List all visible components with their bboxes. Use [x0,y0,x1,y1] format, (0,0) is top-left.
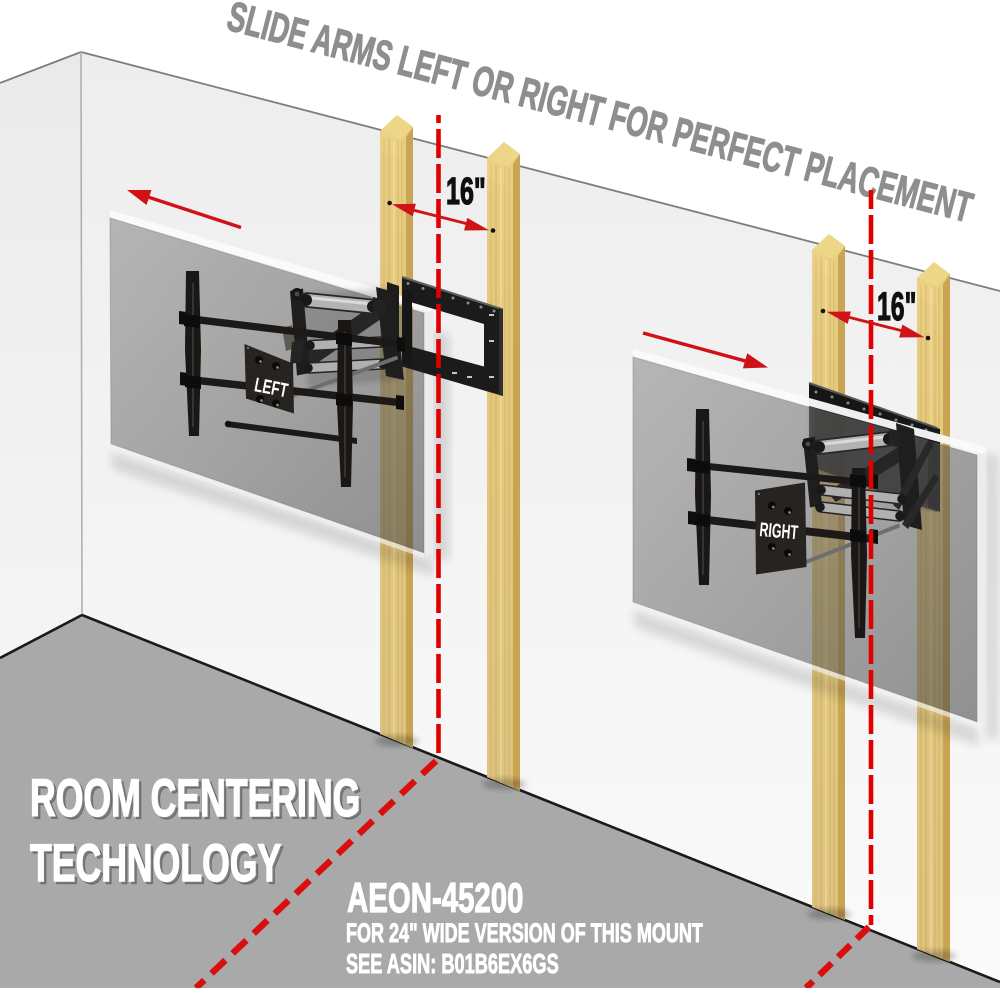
svg-text:RIGHT: RIGHT [759,518,799,544]
svg-text:16": 16" [446,170,486,212]
svg-text:FOR 24" WIDE VERSION OF THIS M: FOR 24" WIDE VERSION OF THIS MOUNT [346,917,703,947]
svg-text:TECHNOLOGY: TECHNOLOGY [30,833,281,893]
svg-text:16": 16" [877,285,916,329]
svg-text:SEE ASIN: B01B6EX6GS: SEE ASIN: B01B6EX6GS [346,949,559,980]
svg-text:ROOM CENTERING: ROOM CENTERING [30,768,360,828]
svg-text:AEON-45200: AEON-45200 [347,874,523,922]
